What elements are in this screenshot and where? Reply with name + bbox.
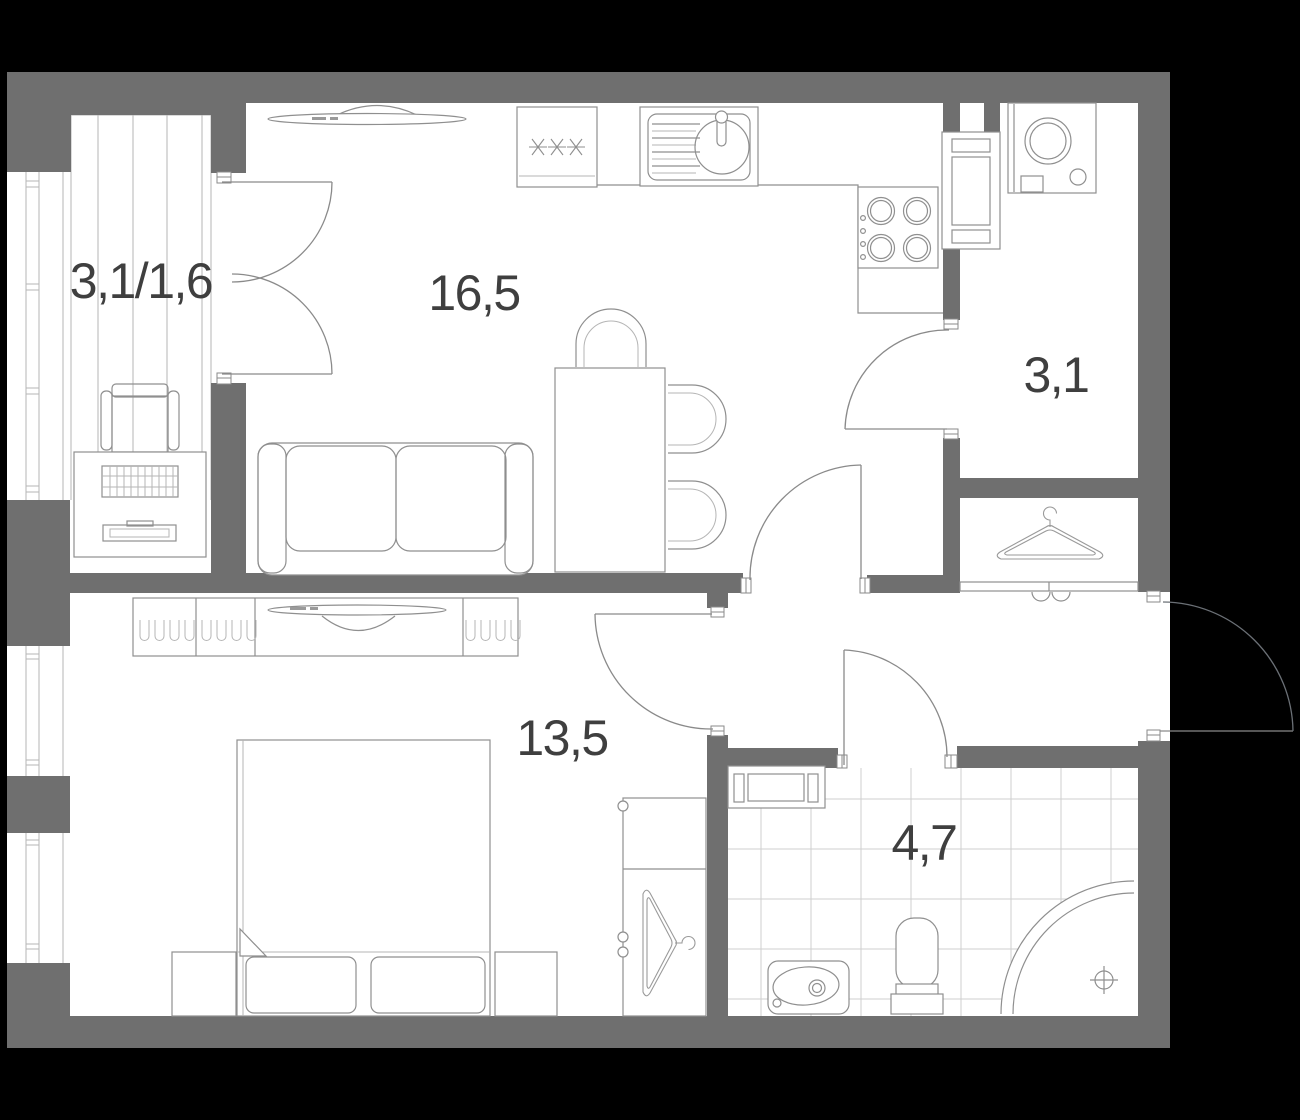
stove-icon xyxy=(858,187,938,268)
wardrobe-icon xyxy=(618,798,706,1016)
dining-table-icon xyxy=(555,368,665,572)
desk-icon xyxy=(74,452,206,557)
fridge-icon xyxy=(517,107,597,187)
room-label-living-kitchen: 16,5 xyxy=(428,265,519,321)
room-label-bathroom: 4,7 xyxy=(891,815,956,871)
nightstand-left-icon xyxy=(172,952,236,1016)
room-label-bedroom: 13,5 xyxy=(516,710,607,766)
bed-icon xyxy=(237,740,490,1016)
vent-shaft-icon xyxy=(942,132,1000,249)
room-label-balcony: 3,1/1,6 xyxy=(70,253,212,309)
kitchen-sink-icon xyxy=(640,107,758,186)
washbasin-icon xyxy=(768,961,849,1014)
washing-machine-icon xyxy=(1008,103,1096,193)
radiator-icon xyxy=(728,766,825,808)
toilet-icon xyxy=(891,918,943,1014)
floor-plan: 3,1/1,6 16,5 3,1 13,5 4,7 xyxy=(0,0,1300,1120)
room-label-hallway: 3,1 xyxy=(1023,347,1088,403)
nightstand-right-icon xyxy=(495,952,557,1016)
sofa-icon xyxy=(258,443,533,575)
